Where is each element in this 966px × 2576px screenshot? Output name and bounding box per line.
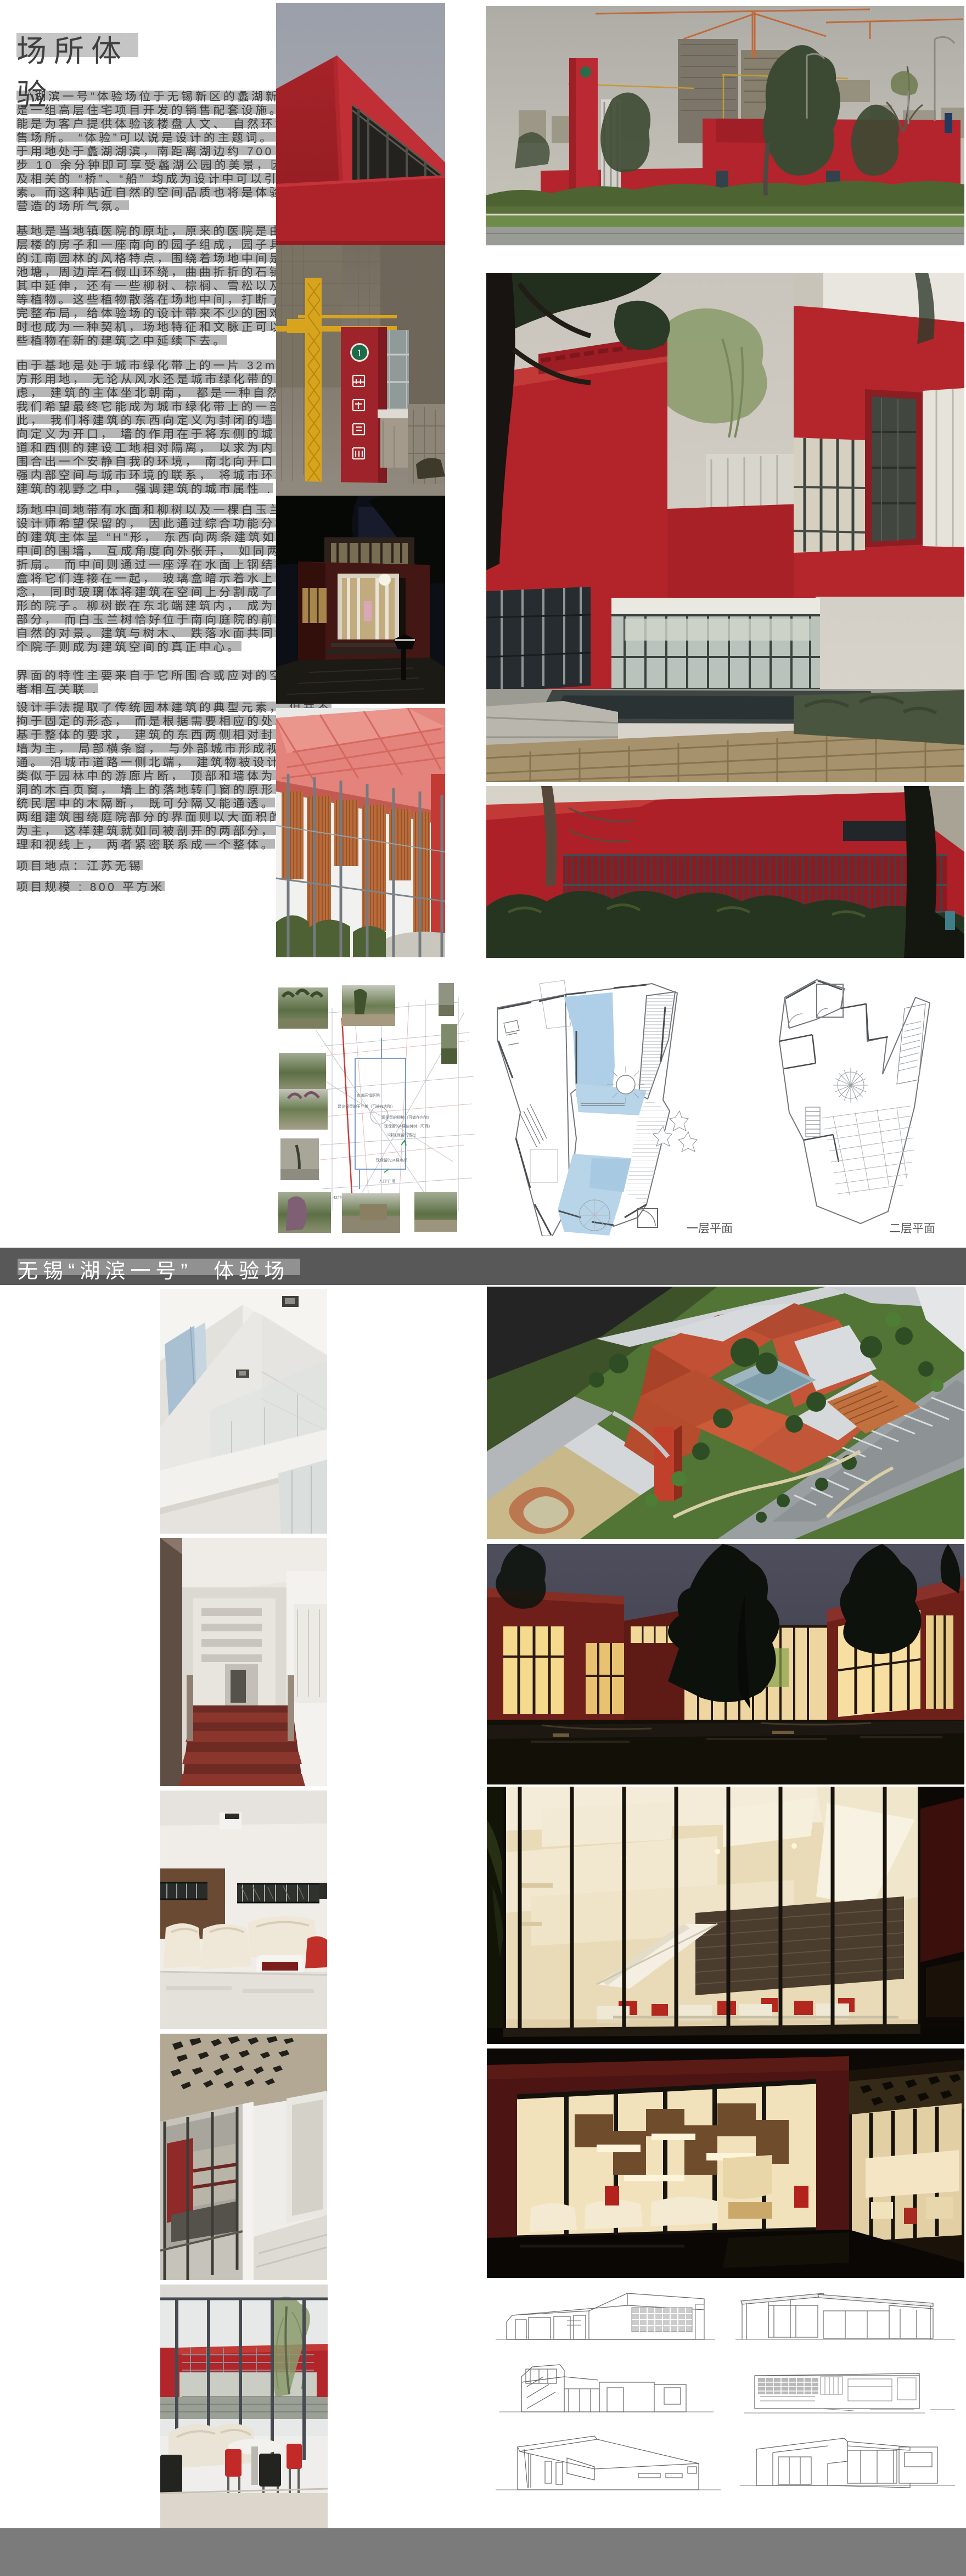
svg-text:市蠡园镇医院: 市蠡园镇医院 bbox=[357, 1093, 380, 1098]
svg-text:现保留的柳树（可做在内院）: 现保留的柳树（可做在内院） bbox=[381, 1115, 431, 1120]
svg-text:1棵现保留的雪松: 1棵现保留的雪松 bbox=[387, 1132, 416, 1137]
svg-text:1: 1 bbox=[357, 347, 362, 358]
svg-text:入口"广场: 入口"广场 bbox=[379, 1178, 396, 1183]
svg-text:建议保留的玉兰树（可放在内院）: 建议保留的玉兰树（可放在内院） bbox=[338, 1104, 395, 1109]
svg-text:现保留的24棵水杉: 现保留的24棵水杉 bbox=[376, 1158, 407, 1163]
svg-text:现保留的4棵位树树（可保）: 现保留的4棵位树树（可保） bbox=[384, 1124, 433, 1129]
